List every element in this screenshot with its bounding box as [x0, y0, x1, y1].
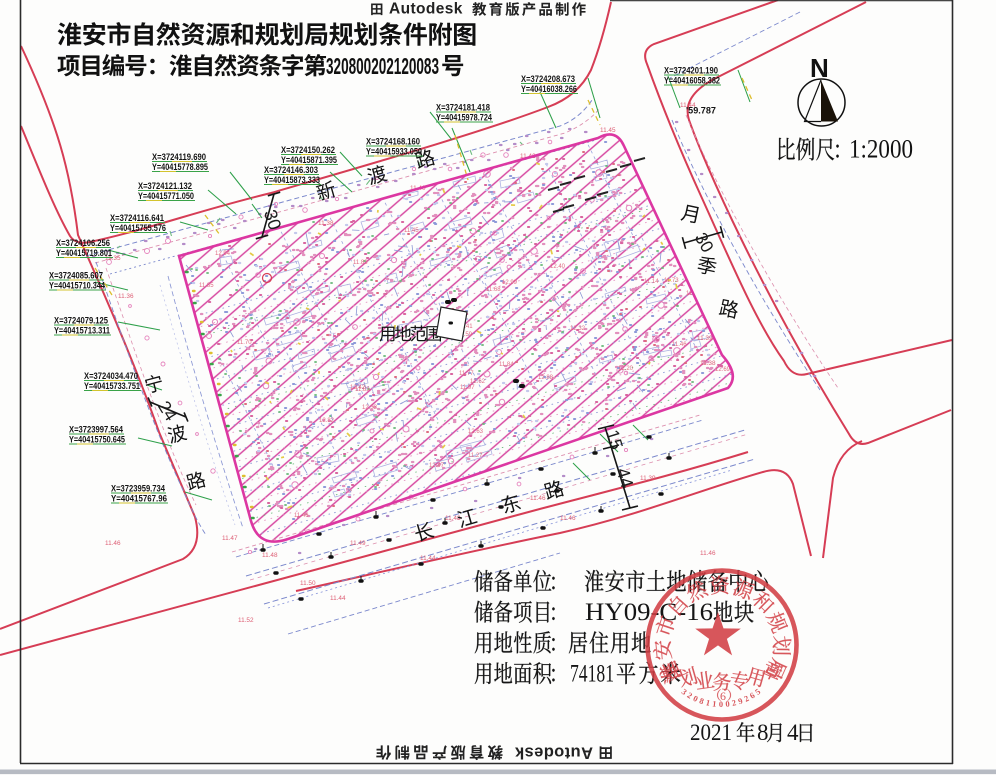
svg-text:12.69: 12.69 [715, 367, 731, 373]
svg-text:X=3724150.262: X=3724150.262 [281, 145, 335, 155]
svg-text:12.94: 12.94 [215, 251, 231, 257]
svg-text:11.45: 11.45 [404, 228, 419, 234]
svg-text:X=3724121.132: X=3724121.132 [138, 181, 192, 191]
svg-text:Y=40415710.344: Y=40415710.344 [49, 281, 106, 291]
svg-text:X=3723959.734: X=3723959.734 [111, 484, 166, 494]
svg-text:11.52: 11.52 [238, 617, 254, 624]
svg-text:12.82: 12.82 [319, 418, 335, 424]
svg-text:11.49: 11.49 [350, 540, 366, 547]
svg-text:8: 8 [757, 720, 769, 745]
svg-text:N: N [810, 53, 829, 83]
svg-text:Y=40415871.395: Y=40415871.395 [281, 155, 337, 165]
svg-text:11.44: 11.44 [330, 595, 346, 602]
svg-text:Y=40415713.311: Y=40415713.311 [54, 326, 110, 336]
svg-text:320800202120083: 320800202120083 [326, 53, 439, 79]
svg-text:11.47: 11.47 [222, 535, 238, 542]
svg-text:11.46: 11.46 [530, 495, 546, 502]
svg-text:2021: 2021 [690, 720, 732, 745]
svg-text:11.46: 11.46 [560, 515, 576, 522]
svg-text:11.46: 11.46 [700, 550, 716, 557]
svg-text:X=3724079.125: X=3724079.125 [54, 316, 108, 326]
svg-text:Y=40415778.895: Y=40415778.895 [152, 162, 208, 172]
svg-text:X=3724208.673: X=3724208.673 [521, 74, 575, 84]
svg-text:Y=40415978.724: Y=40415978.724 [436, 113, 493, 123]
svg-text:X=3724181.418: X=3724181.418 [436, 103, 490, 113]
svg-text:11.83: 11.83 [353, 260, 368, 266]
svg-text:12.32: 12.32 [570, 326, 586, 332]
svg-text:74181: 74181 [570, 660, 614, 687]
svg-text:11.46: 11.46 [294, 513, 309, 519]
svg-text:11.44: 11.44 [420, 555, 436, 562]
svg-text:Autodesk: Autodesk [389, 1, 463, 18]
svg-text:X=3724116.641: X=3724116.641 [110, 213, 164, 223]
svg-text:'59.787: '59.787 [686, 106, 716, 117]
svg-text:11.97: 11.97 [460, 385, 475, 391]
svg-text:X=3724085.607: X=3724085.607 [49, 271, 103, 281]
svg-text:11.48: 11.48 [445, 515, 461, 522]
svg-text:Y=40415873.333: Y=40415873.333 [264, 175, 320, 185]
svg-text:11.68: 11.68 [486, 287, 501, 293]
svg-text:Y=40415750.645: Y=40415750.645 [69, 435, 125, 445]
svg-text:11.36: 11.36 [118, 293, 134, 300]
svg-text:11.39: 11.39 [640, 475, 656, 482]
svg-text:Y=40416058.382: Y=40416058.382 [664, 76, 720, 86]
svg-text:11.46: 11.46 [672, 342, 687, 348]
svg-text:11.45: 11.45 [600, 127, 616, 134]
svg-text:11.73: 11.73 [664, 278, 679, 284]
svg-text:11.14: 11.14 [644, 279, 659, 285]
svg-text:11.38: 11.38 [700, 360, 716, 367]
svg-text:12.42: 12.42 [350, 385, 366, 391]
svg-text:12.63: 12.63 [468, 429, 484, 435]
svg-text:Y=40415771.050: Y=40415771.050 [138, 191, 194, 201]
svg-text:12.99: 12.99 [502, 280, 518, 286]
svg-text:4: 4 [787, 720, 799, 745]
svg-text:11.50: 11.50 [300, 580, 316, 587]
svg-text:12.20: 12.20 [618, 366, 634, 372]
svg-text:11.48: 11.48 [262, 552, 278, 559]
svg-text:Y=40415755.576: Y=40415755.576 [110, 223, 166, 233]
svg-text:11.39: 11.39 [697, 335, 713, 342]
svg-text:X=3724168.160: X=3724168.160 [366, 137, 420, 147]
svg-text:12.88: 12.88 [538, 375, 554, 381]
svg-text:11.85: 11.85 [199, 283, 214, 289]
svg-text:12.33: 12.33 [362, 405, 378, 411]
svg-text:11.27: 11.27 [468, 453, 483, 459]
svg-text:X=3724106.256: X=3724106.256 [56, 238, 110, 248]
svg-text:12.40: 12.40 [550, 264, 566, 270]
svg-text:Autodesk: Autodesk [514, 744, 593, 762]
svg-text:Y=40415933.050: Y=40415933.050 [366, 147, 422, 157]
svg-text:X=3724119.690: X=3724119.690 [152, 152, 206, 162]
svg-text:X=3724201.190: X=3724201.190 [664, 66, 718, 76]
svg-text:11.46: 11.46 [105, 540, 121, 547]
svg-text:11.84: 11.84 [499, 362, 514, 368]
svg-text:1:2000: 1:2000 [849, 135, 913, 164]
svg-text:0: 0 [719, 700, 723, 709]
svg-text:12.47: 12.47 [429, 463, 445, 469]
svg-text:11.77: 11.77 [459, 371, 474, 377]
svg-text:Y=40416038.266: Y=40416038.266 [521, 84, 577, 94]
svg-text:11.38: 11.38 [318, 220, 334, 227]
svg-text:Y=40415767.96: Y=40415767.96 [111, 494, 167, 504]
svg-text:X=3724146.303: X=3724146.303 [264, 165, 318, 175]
svg-text:X=3724034.470: X=3724034.470 [84, 371, 138, 381]
svg-text:11.70: 11.70 [237, 340, 252, 346]
svg-text:Y=40415719.801: Y=40415719.801 [56, 248, 112, 258]
svg-text:Y=40415733.751: Y=40415733.751 [84, 381, 140, 391]
svg-text:X=3723997.564: X=3723997.564 [69, 425, 124, 435]
